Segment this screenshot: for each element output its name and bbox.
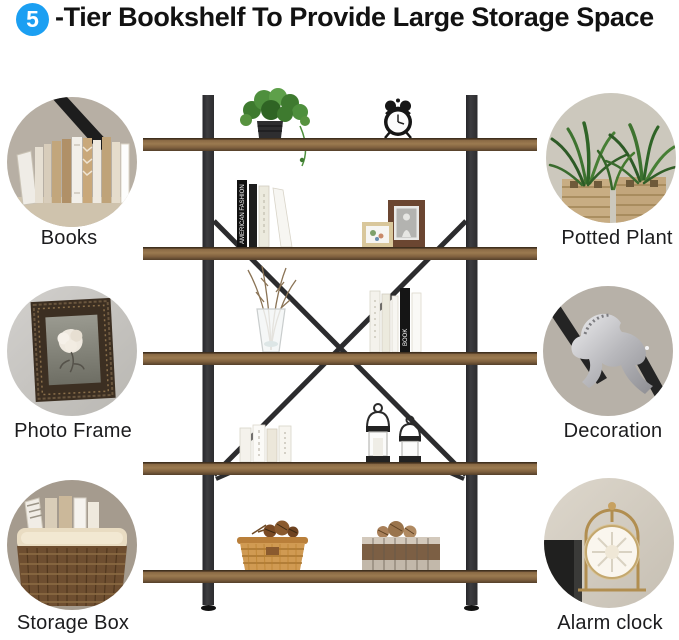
foot-pad-right	[464, 605, 479, 611]
wooden-crate-decor	[362, 521, 440, 570]
frame-post-left	[203, 95, 215, 605]
shelf-board-2	[143, 247, 537, 260]
standing-books-decor: AMERICAN FASHION	[237, 180, 292, 247]
shelf-board-3	[143, 352, 537, 365]
wicker-body	[17, 546, 127, 606]
frame-post-right	[466, 95, 478, 605]
feature-alarm-clock	[544, 478, 674, 608]
shelf-boards	[143, 138, 537, 583]
potted-plant-decor	[240, 88, 310, 166]
bookshelf-illustration: AMERICAN FASHION	[140, 88, 540, 633]
feature-potted-plant	[546, 93, 676, 223]
feature-photo-frame	[7, 286, 137, 416]
alarm-clock-decor	[384, 99, 412, 139]
white-books-decor	[240, 425, 291, 462]
feature-storage-box	[7, 480, 137, 610]
wicker-basket-decor	[237, 521, 308, 571]
header: 5 -Tier Bookshelf To Provide Large Stora…	[0, 0, 679, 44]
photo-frame-thumbnail	[7, 286, 137, 416]
product-infographic: { "header": { "badge": "5", "title": "-T…	[0, 0, 679, 640]
books-thumbnail	[7, 97, 137, 227]
alarm-clock-thumbnail	[544, 478, 674, 608]
feature-label-books: Books	[0, 227, 144, 250]
storage-box-thumbnail	[7, 480, 137, 610]
feature-label-photo-frame: Photo Frame	[0, 420, 148, 443]
shelf-board-1	[143, 138, 537, 151]
feature-books	[7, 97, 137, 227]
book-spine-text: AMERICAN FASHION	[240, 184, 246, 244]
pinecones	[252, 521, 299, 538]
feature-label-storage-box: Storage Box	[0, 612, 148, 635]
feature-label-decoration: Decoration	[538, 420, 679, 443]
basket-label-tag	[266, 547, 279, 555]
tier-count-badge: 5	[16, 3, 49, 36]
decoration-thumbnail	[543, 286, 673, 416]
standing-books-decor-2: BOOK	[370, 288, 421, 352]
photo-frames-decor	[362, 200, 425, 247]
book-spine-text: BOOK	[403, 329, 409, 346]
feature-label-potted-plant: Potted Plant	[542, 227, 679, 250]
potted-plant-thumbnail	[546, 93, 676, 223]
candle-lanterns-decor	[366, 404, 421, 462]
page-title: -Tier Bookshelf To Provide Large Storage…	[55, 2, 675, 33]
feature-label-alarm-clock: Alarm clock	[535, 612, 679, 635]
shelf-board-4	[143, 462, 537, 475]
feature-decoration	[543, 286, 673, 416]
shelf-board-5	[143, 570, 537, 583]
foot-pad-left	[201, 605, 216, 611]
